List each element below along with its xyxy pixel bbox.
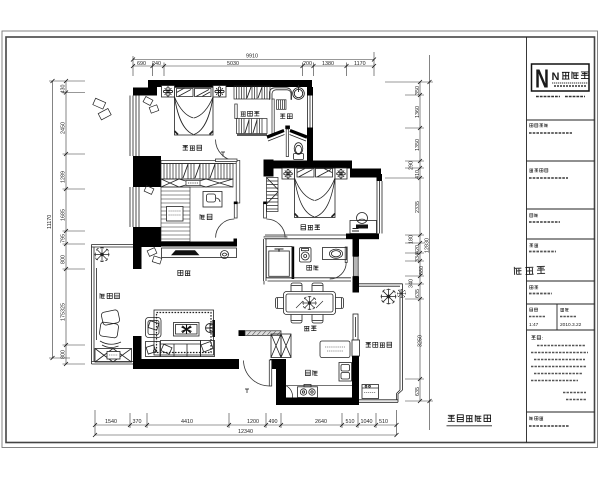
- svg-text:2335: 2335: [415, 201, 421, 213]
- svg-text:12340: 12340: [238, 429, 253, 435]
- svg-text:200: 200: [303, 61, 312, 67]
- svg-text::: :: [542, 336, 543, 342]
- svg-text:334: 334: [415, 253, 421, 262]
- svg-text:510: 510: [346, 419, 355, 425]
- svg-text:430: 430: [61, 85, 67, 94]
- svg-text:350: 350: [415, 86, 421, 95]
- svg-text:1289: 1289: [61, 171, 67, 183]
- svg-text:1685: 1685: [61, 209, 67, 221]
- svg-text:N: N: [535, 64, 549, 94]
- svg-text:800: 800: [61, 350, 67, 359]
- svg-text:11170: 11170: [47, 215, 53, 229]
- svg-text:N: N: [552, 71, 560, 83]
- svg-text:1040: 1040: [361, 419, 373, 425]
- svg-text:1350: 1350: [415, 139, 421, 151]
- svg-text:2010.3.22: 2010.3.22: [560, 322, 582, 328]
- svg-text:2640: 2640: [315, 419, 327, 425]
- svg-text:4410: 4410: [181, 419, 193, 425]
- svg-text:880: 880: [419, 266, 425, 275]
- svg-text:1360: 1360: [415, 106, 421, 118]
- svg-text:1170: 1170: [354, 61, 366, 67]
- svg-text:635: 635: [415, 387, 421, 396]
- svg-text:635: 635: [415, 289, 421, 298]
- svg-text:1380: 1380: [322, 61, 334, 67]
- svg-text:690: 690: [137, 61, 146, 67]
- svg-text:410: 410: [415, 170, 421, 179]
- svg-text:9910: 9910: [246, 54, 258, 60]
- svg-text:340: 340: [409, 279, 415, 288]
- svg-text:1540: 1540: [105, 419, 117, 425]
- svg-text:2450: 2450: [61, 122, 67, 134]
- svg-text:1:47: 1:47: [529, 322, 539, 328]
- svg-text:1200: 1200: [247, 419, 259, 425]
- svg-text:420: 420: [415, 245, 421, 254]
- svg-text:3250: 3250: [418, 335, 424, 347]
- svg-text:800: 800: [61, 255, 67, 264]
- svg-text:12830: 12830: [425, 238, 431, 253]
- svg-text:795: 795: [61, 234, 67, 243]
- svg-text:240: 240: [152, 61, 161, 67]
- svg-text:290: 290: [409, 161, 415, 170]
- svg-text:370: 370: [133, 419, 142, 425]
- svg-text:5030: 5030: [227, 61, 239, 67]
- svg-text:490: 490: [269, 419, 278, 425]
- svg-text:180: 180: [409, 235, 415, 244]
- svg-text:510: 510: [379, 419, 388, 425]
- svg-text:175325: 175325: [61, 303, 67, 321]
